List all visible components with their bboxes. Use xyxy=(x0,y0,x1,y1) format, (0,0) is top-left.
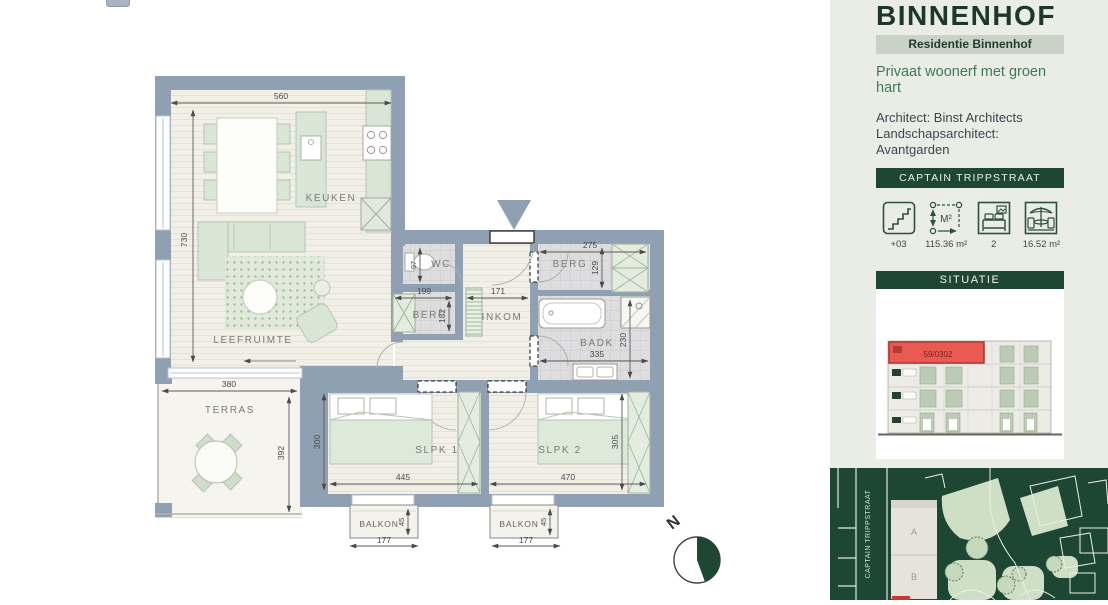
stat-area-value: 115.36 m² xyxy=(924,239,969,250)
stairs-icon xyxy=(882,201,916,235)
building-blocks: A B xyxy=(891,500,937,600)
architect-line: Architect: Binst Architects xyxy=(876,110,1064,126)
street-label: CAPTAIN TRIPPSTRAAT xyxy=(865,489,872,578)
info-sidebar: BINNENHOF Residentie Binnenhof Privaat w… xyxy=(830,0,1108,468)
landscape-architect-line: Landschapsarchitect: Avantgarden xyxy=(876,126,1064,158)
room-label-badk: BADK xyxy=(580,338,614,349)
dim-terras-diepte: 392 xyxy=(276,446,286,460)
stat-bedrooms: 2 xyxy=(971,201,1016,250)
stat-floor: +03 xyxy=(876,201,921,250)
dim-berg-right-breedte: 275 xyxy=(583,240,597,250)
shower xyxy=(621,297,650,328)
dim-badk-breedte: 335 xyxy=(590,349,604,359)
berg-right-door xyxy=(530,252,538,282)
room-label-balkon2: BALKON xyxy=(499,519,538,529)
dining-table xyxy=(204,118,290,213)
dim-slpk2-breedte: 470 xyxy=(561,472,575,482)
block-a-label: A xyxy=(911,527,917,537)
dim-woonruimte-hoogte: 730 xyxy=(179,233,189,247)
slpk2-door xyxy=(488,381,526,392)
room-label-berg-left: BERG xyxy=(413,310,448,321)
dim-balkon2-breedte: 177 xyxy=(519,535,533,545)
dim-balkon1-breedte: 177 xyxy=(377,535,391,545)
kitchen-counter xyxy=(361,90,391,232)
situatie-panel: 59/0302 xyxy=(876,289,1064,459)
block-c-highlight xyxy=(892,596,910,600)
stat-floor-value: +03 xyxy=(876,239,921,250)
stat-terrace: 16.52 m² xyxy=(1019,201,1064,250)
room-label-balkon1: BALKON xyxy=(359,519,398,529)
wardrobe-slpk1 xyxy=(458,392,480,493)
dim-slpk1-breedte: 445 xyxy=(396,472,410,482)
room-label-wc: WC xyxy=(431,259,451,270)
stats-row: +03 xyxy=(876,201,1064,250)
technical-shaft xyxy=(466,288,482,336)
page-canvas: 560 730 380 392 97 199 132 171 275 129 3… xyxy=(0,0,1108,600)
room-label-slpk1: SLPK 1 xyxy=(415,445,459,456)
project-title: BINNENHOF xyxy=(876,0,1064,30)
dim-terras-breedte: 380 xyxy=(222,379,236,389)
berg-right-closet xyxy=(612,244,648,292)
room-label-slpk2: SLPK 2 xyxy=(538,445,582,456)
room-label-berg-right: BERG xyxy=(553,259,588,270)
compass-north-label: N xyxy=(664,513,684,534)
dim-berg-right-diepte: 129 xyxy=(590,261,600,275)
cooktop xyxy=(363,126,391,160)
site-map-drawing: CAPTAIN TRIPPSTRAAT xyxy=(830,468,1108,600)
dim-balkon2-diepte: 45 xyxy=(539,518,548,526)
block-b-label: B xyxy=(911,572,917,582)
dim-wc: 97 xyxy=(409,261,418,269)
highlighted-unit-label: 59/0302 xyxy=(924,350,953,359)
coffee-table xyxy=(243,280,277,314)
bathtub xyxy=(539,299,605,328)
unit-address-bar: CAPTAIN TRIPPSTRAAT 59/0302 xyxy=(876,168,1064,188)
front-door xyxy=(490,231,534,243)
site-map: CAPTAIN TRIPPSTRAAT xyxy=(830,468,1108,600)
compass: N xyxy=(664,513,720,583)
floor-plan: 560 730 380 392 97 199 132 171 275 129 3… xyxy=(0,0,830,600)
balkon2-door xyxy=(492,495,554,506)
terrace-table xyxy=(192,434,242,492)
dim-berg-left-breedte: 199 xyxy=(417,286,431,296)
building-elevation: 59/0302 xyxy=(876,289,1064,459)
slpk1-door xyxy=(418,381,456,392)
area-icon: M² xyxy=(929,201,963,235)
wardrobe-slpk2 xyxy=(628,392,650,493)
terrace-icon xyxy=(1024,201,1058,235)
room-label-terras: TERRAS xyxy=(205,405,255,416)
bedroom-icon xyxy=(977,201,1011,235)
dim-slpk1-diepte: 300 xyxy=(312,435,322,449)
dim-slpk2-diepte: 305 xyxy=(610,435,620,449)
dim-inkom-breedte: 171 xyxy=(491,286,505,296)
room-label-leefruimte: LEEFRUIMTE xyxy=(213,335,292,346)
balkon1-door xyxy=(352,495,414,506)
stat-bedrooms-value: 2 xyxy=(971,239,1016,250)
floor-lamp xyxy=(314,280,330,296)
dim-keuken-breedte: 560 xyxy=(274,91,288,101)
room-label-inkom: INKOM xyxy=(482,312,523,323)
stat-terrace-value: 16.52 m² xyxy=(1019,239,1064,250)
situatie-header: SITUATIE xyxy=(876,271,1064,289)
entrance-marker xyxy=(497,200,531,230)
dim-badk-diepte: 230 xyxy=(618,333,628,347)
highlighted-unit[interactable]: 59/0302 xyxy=(889,342,984,363)
badk-door xyxy=(530,336,538,366)
area-icon-glyph: M² xyxy=(940,214,952,225)
tagline: Privaat woonerf met groen hart xyxy=(876,64,1064,96)
washbasin xyxy=(573,364,617,380)
residence-badge: Residentie Binnenhof xyxy=(876,35,1064,54)
room-label-keuken: KEUKEN xyxy=(306,193,357,204)
stat-area: M² 115.36 m² xyxy=(924,201,969,250)
